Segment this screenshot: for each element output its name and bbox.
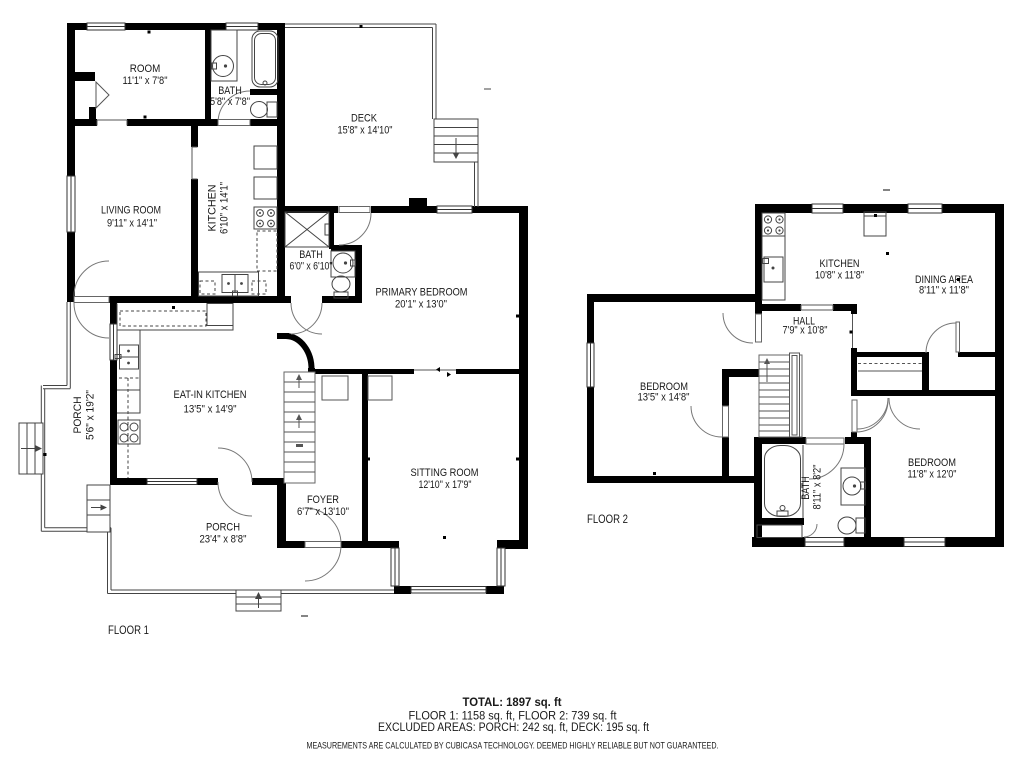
svg-text:SITTING ROOM: SITTING ROOM	[411, 467, 479, 479]
svg-text:7'9" x 10'8": 7'9" x 10'8"	[783, 325, 828, 337]
svg-text:5'6" x 19'2": 5'6" x 19'2"	[85, 390, 97, 440]
svg-text:PRIMARY BEDROOM: PRIMARY BEDROOM	[376, 287, 468, 299]
svg-text:11'8" x 12'0": 11'8" x 12'0"	[908, 469, 957, 481]
svg-text:6'7" x 13'10": 6'7" x 13'10"	[297, 506, 349, 518]
svg-text:DECK: DECK	[351, 113, 377, 125]
svg-text:ROOM: ROOM	[130, 63, 161, 75]
svg-text:MEASUREMENTS ARE CALCULATED BY: MEASUREMENTS ARE CALCULATED BY CUBICASA …	[307, 741, 719, 752]
svg-text:20'1" x 13'0": 20'1" x 13'0"	[395, 299, 447, 311]
svg-text:KITCHEN: KITCHEN	[207, 185, 219, 232]
svg-text:9'11" x 14'1": 9'11" x 14'1"	[107, 218, 157, 230]
svg-text:FLOOR 1: FLOOR 1	[108, 623, 149, 637]
svg-text:EAT-IN KITCHEN: EAT-IN KITCHEN	[174, 389, 247, 401]
svg-text:15'8" x 14'10": 15'8" x 14'10"	[338, 125, 393, 137]
svg-text:10'8" x 11'8": 10'8" x 11'8"	[815, 270, 864, 282]
svg-text:13'5" x 14'8": 13'5" x 14'8"	[638, 392, 690, 404]
svg-text:LIVING ROOM: LIVING ROOM	[101, 205, 161, 217]
svg-text:EXCLUDED AREAS: PORCH: 242 sq.: EXCLUDED AREAS: PORCH: 242 sq. ft, DECK:…	[378, 722, 650, 734]
svg-text:6'10" x 14'1": 6'10" x 14'1"	[219, 182, 231, 234]
svg-text:8'11" x 8'2": 8'11" x 8'2"	[812, 464, 824, 509]
svg-text:BATH: BATH	[299, 249, 323, 261]
svg-text:TOTAL: 1897 sq. ft: TOTAL: 1897 sq. ft	[463, 697, 562, 709]
svg-text:KITCHEN: KITCHEN	[820, 258, 860, 270]
svg-text:23'4" x 8'8": 23'4" x 8'8"	[200, 534, 247, 546]
svg-text:BATH: BATH	[800, 476, 812, 500]
svg-text:5'8" x 7'8": 5'8" x 7'8"	[210, 96, 250, 108]
svg-text:12'10" x 17'9": 12'10" x 17'9"	[419, 479, 472, 491]
svg-text:8'11" x 11'8": 8'11" x 11'8"	[919, 285, 969, 297]
svg-text:FLOOR 2: FLOOR 2	[587, 512, 628, 526]
svg-text:6'0" x 6'10": 6'0" x 6'10"	[290, 261, 333, 273]
svg-text:PORCH: PORCH	[206, 522, 240, 534]
svg-text:PORCH: PORCH	[72, 397, 84, 434]
svg-text:11'1" x 7'8": 11'1" x 7'8"	[123, 75, 168, 87]
svg-text:13'5" x 14'9": 13'5" x 14'9"	[184, 404, 237, 416]
svg-text:FLOOR 1: 1158 sq. ft, FLOOR 2:: FLOOR 1: 1158 sq. ft, FLOOR 2: 739 sq. f…	[409, 711, 618, 723]
svg-text:BEDROOM: BEDROOM	[908, 457, 956, 469]
svg-text:FOYER: FOYER	[307, 494, 339, 506]
